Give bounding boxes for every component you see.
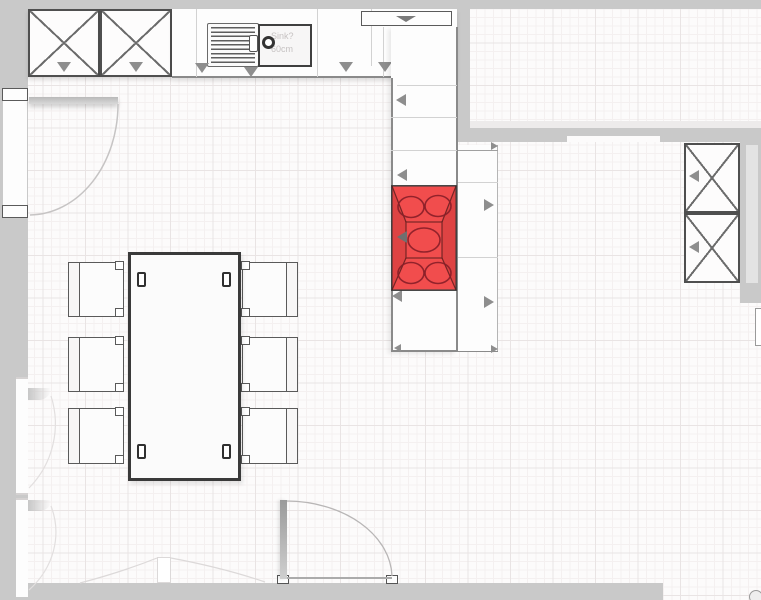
door-left3-opening[interactable] — [16, 498, 28, 597]
cabinet-door-indicator-icon — [689, 170, 699, 182]
counter-right-column[interactable] — [458, 145, 498, 351]
cabinet-door-indicator-icon — [392, 290, 402, 302]
counter-rc-edge-right — [497, 145, 498, 351]
right-edge-object[interactable] — [755, 308, 761, 346]
door-left3-swing-arc[interactable] — [29, 506, 56, 590]
cabinet-door-indicator-icon — [397, 231, 407, 243]
cabinet-door-indicator-icon — [394, 344, 401, 352]
cabinet-door-indicator-icon — [57, 62, 71, 72]
door-left2-leaf[interactable] — [28, 388, 51, 400]
cabinet-door-indicator-icon — [491, 345, 498, 353]
door-bottom-faint-arc-right[interactable] — [171, 558, 265, 582]
table-leg — [137, 272, 146, 287]
corner-compass-icon — [749, 590, 761, 600]
door-left2-opening[interactable] — [16, 377, 28, 495]
counter-division — [397, 85, 457, 86]
cabinet-door-indicator-icon — [244, 67, 258, 77]
chair-post — [241, 407, 250, 416]
counter-front-edge — [172, 76, 392, 78]
door-left-jamb — [3, 101, 27, 205]
cabinet-door-indicator-icon — [339, 62, 353, 72]
chair-backrest — [286, 262, 298, 317]
wall-topright-passthrough — [567, 136, 660, 142]
counter-division — [391, 150, 457, 151]
door-left2-swing-arc[interactable] — [29, 396, 55, 488]
cabinet-door-indicator-icon — [378, 62, 392, 72]
sink-label: Sink? 60cm — [271, 30, 311, 55]
cabinet-door-indicator-icon — [129, 62, 143, 72]
chair-backrest — [68, 408, 80, 464]
cabinet-door-indicator-icon — [491, 142, 498, 150]
chair-post — [241, 261, 250, 270]
chair-post — [241, 455, 250, 464]
chair-post — [241, 308, 250, 317]
door-bottom-faint-leaf[interactable] — [157, 557, 171, 583]
table-leg — [137, 444, 146, 459]
faucet-base — [249, 35, 258, 52]
faucet-knob-icon — [262, 36, 275, 49]
door-left-frame-bottom — [2, 205, 28, 218]
chair-post — [241, 383, 250, 392]
wall-top[interactable] — [0, 0, 761, 9]
door-bottom-faint-arc-left[interactable] — [80, 558, 157, 583]
door-left-frame-top — [2, 88, 28, 101]
cabinet-door-indicator-icon — [195, 63, 209, 73]
door-left-swing-arc[interactable] — [30, 104, 118, 215]
cabinet-door-indicator-icon — [396, 94, 406, 106]
table-leg — [222, 444, 231, 459]
corner-unit-indicator-icon — [396, 16, 416, 22]
chair-post — [115, 407, 124, 416]
door-bottom-leaf[interactable] — [280, 500, 287, 579]
cabinet-door-indicator-icon — [484, 199, 494, 211]
chair-backrest — [286, 337, 298, 392]
door-left-leaf[interactable] — [29, 97, 118, 104]
chair-post — [115, 455, 124, 464]
sink-label-line2: 60cm — [271, 43, 311, 56]
counter-division — [317, 9, 318, 77]
door-bottom-threshold — [283, 577, 392, 579]
chair-post — [115, 336, 124, 345]
chair-backrest — [286, 408, 298, 464]
counter-division — [391, 117, 457, 118]
chair-post — [241, 336, 250, 345]
counter-rc-top — [458, 150, 498, 151]
door-left3-leaf[interactable] — [28, 500, 51, 511]
wall-bottom[interactable] — [0, 583, 663, 600]
chair-post — [115, 261, 124, 270]
cabinet-door-indicator-icon — [689, 241, 699, 253]
window-right-inset[interactable] — [746, 145, 758, 283]
door-bottom-swing-arc[interactable] — [287, 501, 392, 576]
chair-backrest — [68, 337, 80, 392]
chair-post — [115, 383, 124, 392]
sink-label-line1: Sink? — [271, 30, 311, 43]
counter-division — [458, 257, 498, 258]
chair-post — [115, 308, 124, 317]
cabinet-door-indicator-icon — [397, 169, 407, 181]
counter-division — [458, 182, 498, 183]
table-leg — [222, 272, 231, 287]
chair-backrest — [68, 262, 80, 317]
cabinet-door-indicator-icon — [484, 296, 494, 308]
wall-topright-outer-band — [470, 121, 761, 128]
floor-plan-canvas: Sink? 60cm — [0, 0, 761, 600]
